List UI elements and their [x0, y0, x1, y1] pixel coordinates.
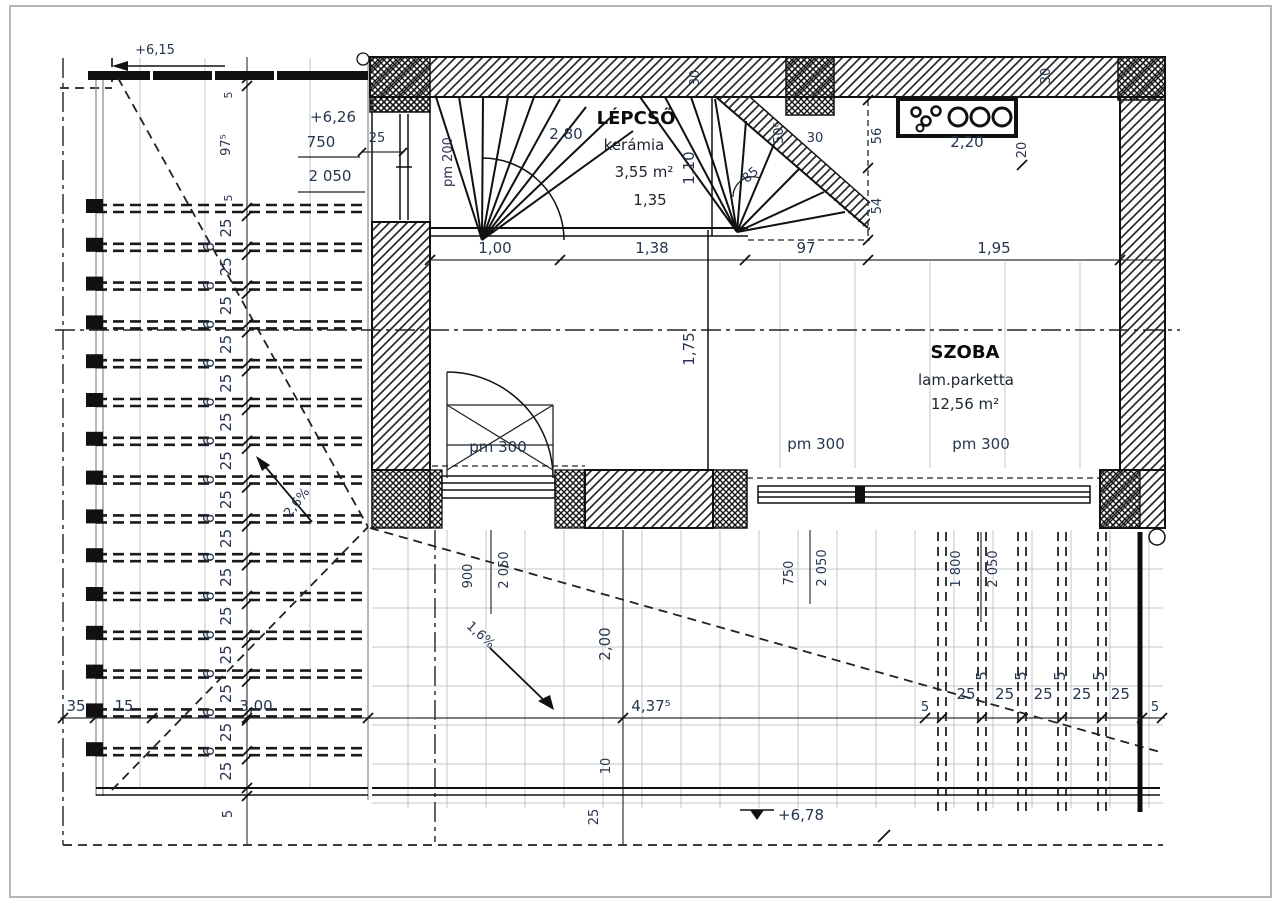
- chain-label-5-mid: 5: [222, 195, 235, 202]
- stair-tread-dim: 1,35: [633, 191, 666, 209]
- dim-label: 25: [995, 685, 1014, 703]
- dim-right-54: 54: [870, 198, 885, 215]
- spec-szoba-b1-h: 2 050: [815, 549, 830, 586]
- wall-right: [1120, 97, 1165, 470]
- grid-bubble-right: [1149, 529, 1165, 545]
- dim-wall-25: 25: [369, 131, 386, 146]
- dim-label: 25: [217, 762, 235, 781]
- dim-stair-110: 1,10: [680, 151, 698, 184]
- level-label-terrace: +6,78: [778, 806, 824, 824]
- kitchen-fixture: [898, 99, 1016, 136]
- dim-label: 25: [217, 335, 235, 354]
- spec-szoba-left-w: 900: [461, 564, 476, 589]
- dim-label: 6: [200, 397, 218, 407]
- spec-szoba-b2-h: 2 050: [986, 550, 1001, 587]
- room-area-szoba: 12,56 m²: [931, 395, 999, 413]
- dim-run-1: 1,00: [478, 239, 511, 257]
- floor-plan-page: 2,6% +6,15 5 97⁵ 5 252525252525252525252…: [0, 0, 1280, 908]
- dim-stair-506: 50⁶: [772, 122, 787, 144]
- dim-label: 25: [217, 412, 235, 431]
- wall-left: [372, 222, 430, 470]
- dim-label: 25: [217, 723, 235, 742]
- parapet-stair: pm 200: [441, 137, 456, 187]
- spec-szoba-left-h: 2 050: [497, 551, 512, 588]
- dim-beam-end-left: 5: [921, 700, 929, 715]
- pillar-bottom-mid: [713, 470, 747, 528]
- dim-label: 6: [200, 281, 218, 291]
- dim-right-56: 56: [870, 128, 885, 145]
- dim-label: 25: [217, 645, 235, 664]
- dim-label: 6: [200, 242, 218, 252]
- chain-label-975: 97⁵: [219, 134, 234, 156]
- dim-kitchen-20: 20: [1015, 142, 1030, 159]
- dim-kitchen-220: 2,20: [950, 133, 983, 151]
- parapet-window-2: pm 300: [952, 435, 1010, 453]
- room-material-lepcso: kerámia: [604, 136, 665, 154]
- deck-top-beam: [88, 71, 368, 80]
- dim-bottom-4375: 4,37⁵: [631, 697, 670, 715]
- floor-plan-svg: 2,6% +6,15 5 97⁵ 5 252525252525252525252…: [0, 0, 1280, 908]
- dim-label: 25: [217, 451, 235, 470]
- dim-label: 25: [217, 296, 235, 315]
- spec-left-w: 750: [307, 133, 336, 151]
- dim-run-2: 1,38: [635, 239, 668, 257]
- dim-label: 6: [200, 359, 218, 369]
- dim-label: 25: [217, 684, 235, 703]
- dim-label: 6: [200, 669, 218, 679]
- dim-label: 25: [956, 685, 975, 703]
- dim-label: 25: [217, 568, 235, 587]
- dim-label: 25: [217, 606, 235, 625]
- dim-label: 6: [200, 630, 218, 640]
- dim-label: 25: [217, 257, 235, 276]
- window-szoba-left: [442, 476, 555, 498]
- dim-label: 5: [1090, 671, 1108, 681]
- dim-terrace-10: 10: [599, 758, 614, 775]
- dim-label: 25: [217, 529, 235, 548]
- dim-topwall-30a: 30: [688, 70, 703, 87]
- dim-topwall-30b: 30: [1039, 68, 1054, 85]
- pillar-top-mid: [786, 57, 834, 115]
- dim-label: 6: [200, 591, 218, 601]
- dim-label: 5: [973, 671, 991, 681]
- parapet-window-1: pm 300: [787, 435, 845, 453]
- spec-szoba-b1-w: 750: [782, 561, 797, 586]
- dim-bottom-15: 15: [114, 697, 133, 715]
- dim-bottom-35: 35: [66, 697, 85, 715]
- pillar-top-right: [1118, 57, 1165, 100]
- spec-szoba-b2-w: 1 800: [949, 550, 964, 587]
- grid-bubble-top: [357, 53, 369, 65]
- dim-terrace-200: 2,00: [596, 627, 614, 660]
- level-label: +6,15: [135, 43, 175, 58]
- window-left-wall: [372, 112, 430, 222]
- dim-label: 25: [1111, 685, 1130, 703]
- dim-label: 6: [200, 553, 218, 563]
- dim-label: 5: [1051, 671, 1069, 681]
- dim-label: 25: [217, 218, 235, 237]
- spec-left-h: 2 050: [309, 167, 352, 185]
- dim-label: 25: [217, 490, 235, 509]
- dim-stair-30: 30: [807, 131, 824, 146]
- parapet-door: pm 300: [469, 438, 527, 456]
- room-material-szoba: lam.parketta: [918, 371, 1014, 389]
- chain-label-5-bottom: 5: [221, 810, 236, 818]
- dim-stair-280: 2,80: [549, 125, 582, 143]
- room-title-lepcso: LÉPCSŐ: [597, 107, 676, 129]
- dim-label: 6: [200, 514, 218, 524]
- dim-run-3: 97: [796, 239, 815, 257]
- level-upper-floor: +6,26: [310, 108, 356, 126]
- dim-label: 6: [200, 747, 218, 757]
- room-area-lepcso: 3,55 m²: [615, 163, 674, 181]
- dim-label: 6: [200, 436, 218, 446]
- chain-label-5-top: 5: [222, 92, 235, 99]
- dim-label: 6: [200, 320, 218, 330]
- dim-terrace-25: 25: [587, 809, 602, 826]
- dim-room-175: 1,75: [680, 332, 698, 365]
- room-title-szoba: SZOBA: [931, 342, 1000, 363]
- dim-beam-end-right: 5: [1151, 700, 1159, 715]
- pillar-window-jamb: [555, 470, 585, 528]
- dim-bottom-300: 3,00: [239, 697, 272, 715]
- pillar-bottom-right: [1100, 470, 1140, 528]
- dim-label: 6: [200, 475, 218, 485]
- wall-bottom-mid: [585, 470, 713, 528]
- dim-label: 25: [1072, 685, 1091, 703]
- pillar-bottom-left: [372, 470, 430, 528]
- dim-run-4: 1,95: [977, 239, 1010, 257]
- dim-label: 25: [1034, 685, 1053, 703]
- dim-label: 5: [1012, 671, 1030, 681]
- chain-25-labels: 252525252525252525252525252525: [217, 218, 235, 780]
- dim-label: 25: [217, 374, 235, 393]
- dim-label: 6: [200, 708, 218, 718]
